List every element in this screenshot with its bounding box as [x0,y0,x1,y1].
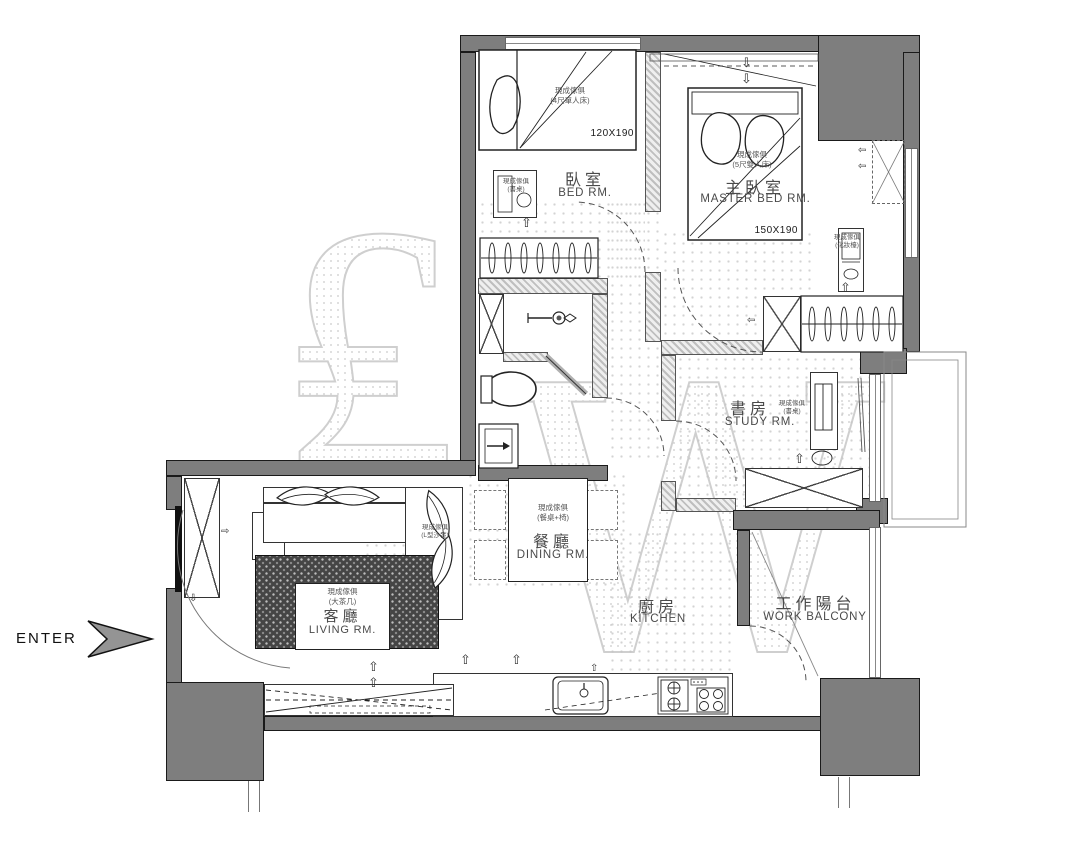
study-desk-note: 現成傢俱 (書桌) [770,400,814,417]
living-table-note: 現成傢俱 (大茶几) [297,587,388,607]
open-direction-arrow: ⇧ [840,281,851,294]
enter-arrow-icon [88,621,152,657]
open-direction-arrow: ⇧ [368,660,379,673]
master-bed-note: 現成傢俱 (5尺雙人床) [712,150,792,170]
bedroom-bed-note: 現成傢俱 (4尺單人床) [535,86,605,106]
note-line: 現成傢俱 [712,150,792,160]
floor-plan: ₤ W [0,0,1071,850]
note-line: 現成傢俱 [297,587,388,597]
bedroom-desk-note: 現成傢俱 (書桌) [496,178,536,195]
entry-door-arc [177,510,290,668]
open-direction-arrow: ⇧ [794,452,805,465]
note-line: (書桌) [496,186,536,194]
open-direction-arrow: ⇧ [460,653,471,666]
note-line: 現成傢俱 [508,503,598,513]
bay-ledge [884,352,966,527]
open-direction-arrow: ⇩ [741,56,752,69]
open-direction-arrow: ⇧ [368,676,379,689]
bedroom-wardrobe [480,238,598,278]
master-name-en: MASTER BED RM. [683,193,828,205]
balcony-name-en: WORK BALCONY [750,611,880,623]
note-line: (5尺雙人床) [712,160,792,170]
plan-lineart [0,0,1071,850]
dining-name-en: DINING RM. [498,549,608,561]
dining-note: 現成傢俱 (餐桌+椅) [508,503,598,523]
open-direction-arrow: ⇩ [189,594,197,604]
note-line: (4尺單人床) [535,96,605,106]
open-direction-arrow: ⇧ [521,216,532,229]
bedroom-name-en: BED RM. [540,187,630,199]
note-line: (化妝檯) [822,242,872,250]
toilet [481,372,536,406]
open-direction-arrow: ⇦ [858,162,866,172]
open-direction-arrow: ⇧ [511,653,522,666]
kitchen-name-en: KITCHEN [613,613,703,625]
bedroom-bed-dimension: 120X190 [588,128,634,139]
open-direction-arrow: ⇦ [858,146,866,156]
master-mirror-detail [872,140,905,204]
note-line: 現成傢俱 [535,86,605,96]
master-bed-dimension: 150X190 [752,225,798,236]
living-sofa-note: 現成傢俱 (L型沙發) [406,524,464,541]
shower [528,312,586,394]
stove [658,677,728,714]
living-name-zh: 客廳 [297,605,388,626]
note-line: (餐桌+椅) [508,513,598,523]
enter-label: ENTER [16,630,77,647]
master-vanity-note: 現成傢俱 (化妝檯) [822,234,872,251]
open-direction-arrow: ⇩ [741,72,752,85]
bathroom-sink [479,424,518,468]
entry-bench-detail [266,688,452,713]
living-name-en: LIVING RM. [297,624,388,636]
open-direction-arrow: ⇦ [747,316,755,326]
open-direction-arrow: ⇨ [221,527,229,537]
double-bed [664,54,816,240]
study-name-en: STUDY RM. [700,416,820,428]
note-line: (L型沙發) [406,532,464,540]
master-top-window-line [650,54,818,61]
note-line: (書桌) [770,408,814,416]
open-direction-arrow: ⇧ [590,664,598,674]
master-wardrobe [801,296,903,352]
